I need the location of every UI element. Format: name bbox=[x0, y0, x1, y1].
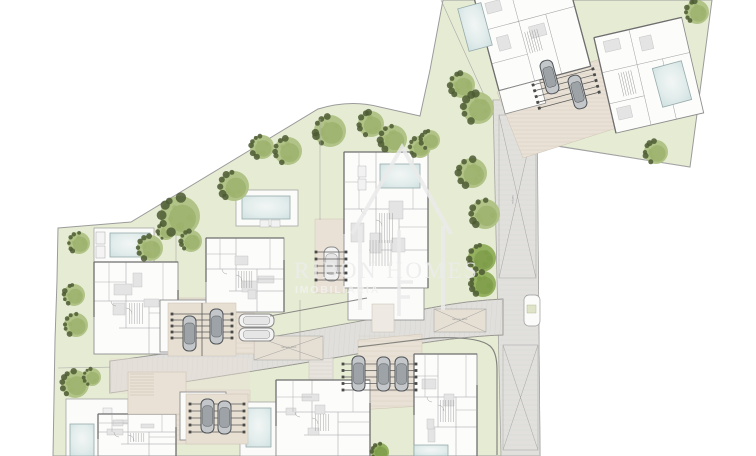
svg-text:rampa 12%: rampa 12% bbox=[452, 317, 468, 321]
svg-text:rampa 10%: rampa 10% bbox=[281, 345, 297, 349]
svg-text:RIBON HOMES: RIBON HOMES bbox=[294, 258, 479, 283]
svg-text:IMOBILIARIA: IMOBILIARIA bbox=[295, 284, 380, 296]
svg-text:rampa: rampa bbox=[511, 195, 515, 204]
